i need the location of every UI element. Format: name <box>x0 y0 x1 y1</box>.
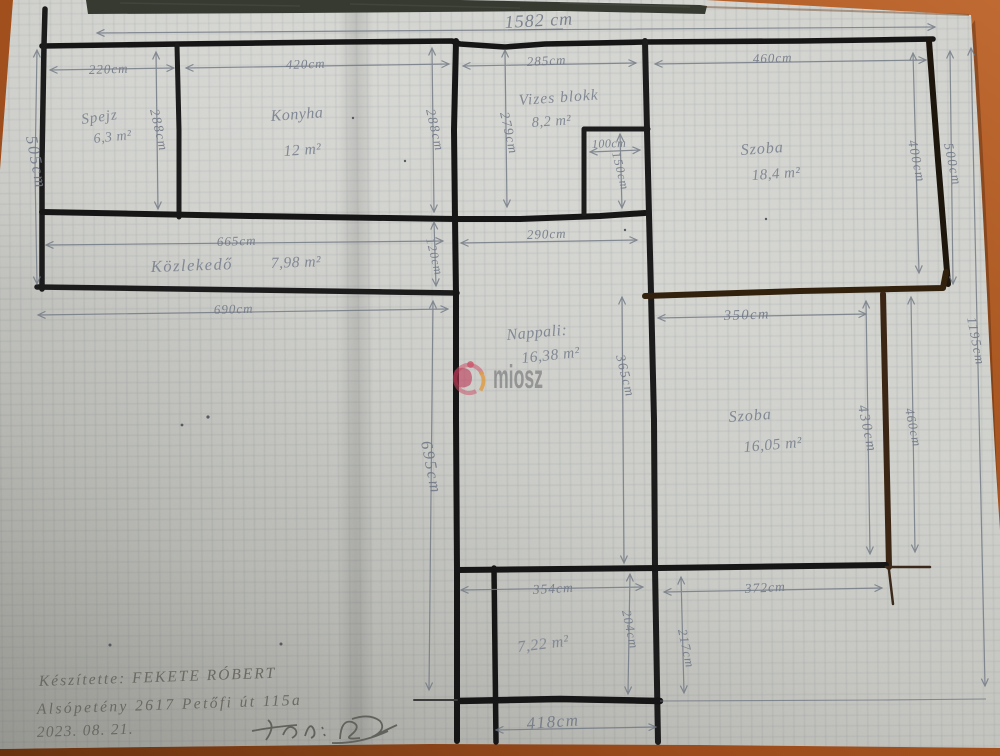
svg-text:1582 cm: 1582 cm <box>504 8 573 32</box>
svg-text:Szoba: Szoba <box>728 406 772 426</box>
svg-text:372cm: 372cm <box>743 579 786 596</box>
svg-text:290cm: 290cm <box>527 226 567 242</box>
svg-text:100cm: 100cm <box>592 136 627 151</box>
svg-text:8,2 m²: 8,2 m² <box>531 112 572 131</box>
svg-text:Szoba: Szoba <box>740 139 784 159</box>
svg-text:12 m²: 12 m² <box>283 140 322 160</box>
svg-text:460cm: 460cm <box>753 50 793 66</box>
svg-text:18,4 m²: 18,4 m² <box>751 165 801 184</box>
svg-text:690cm: 690cm <box>214 301 254 317</box>
svg-text:2023. 08. 21.: 2023. 08. 21. <box>37 721 135 741</box>
svg-text:420cm: 420cm <box>286 56 326 72</box>
svg-text:350cm: 350cm <box>723 306 771 324</box>
svg-text:418cm: 418cm <box>526 710 580 733</box>
svg-text:miosz: miosz <box>493 358 543 395</box>
svg-text:354cm: 354cm <box>531 580 574 597</box>
svg-text:665cm: 665cm <box>217 233 257 249</box>
svg-text:7,98 m²: 7,98 m² <box>271 253 322 272</box>
svg-text:285cm: 285cm <box>526 52 566 69</box>
svg-text:Közlekedő: Közlekedő <box>149 254 233 276</box>
svg-text:220cm: 220cm <box>89 61 129 77</box>
